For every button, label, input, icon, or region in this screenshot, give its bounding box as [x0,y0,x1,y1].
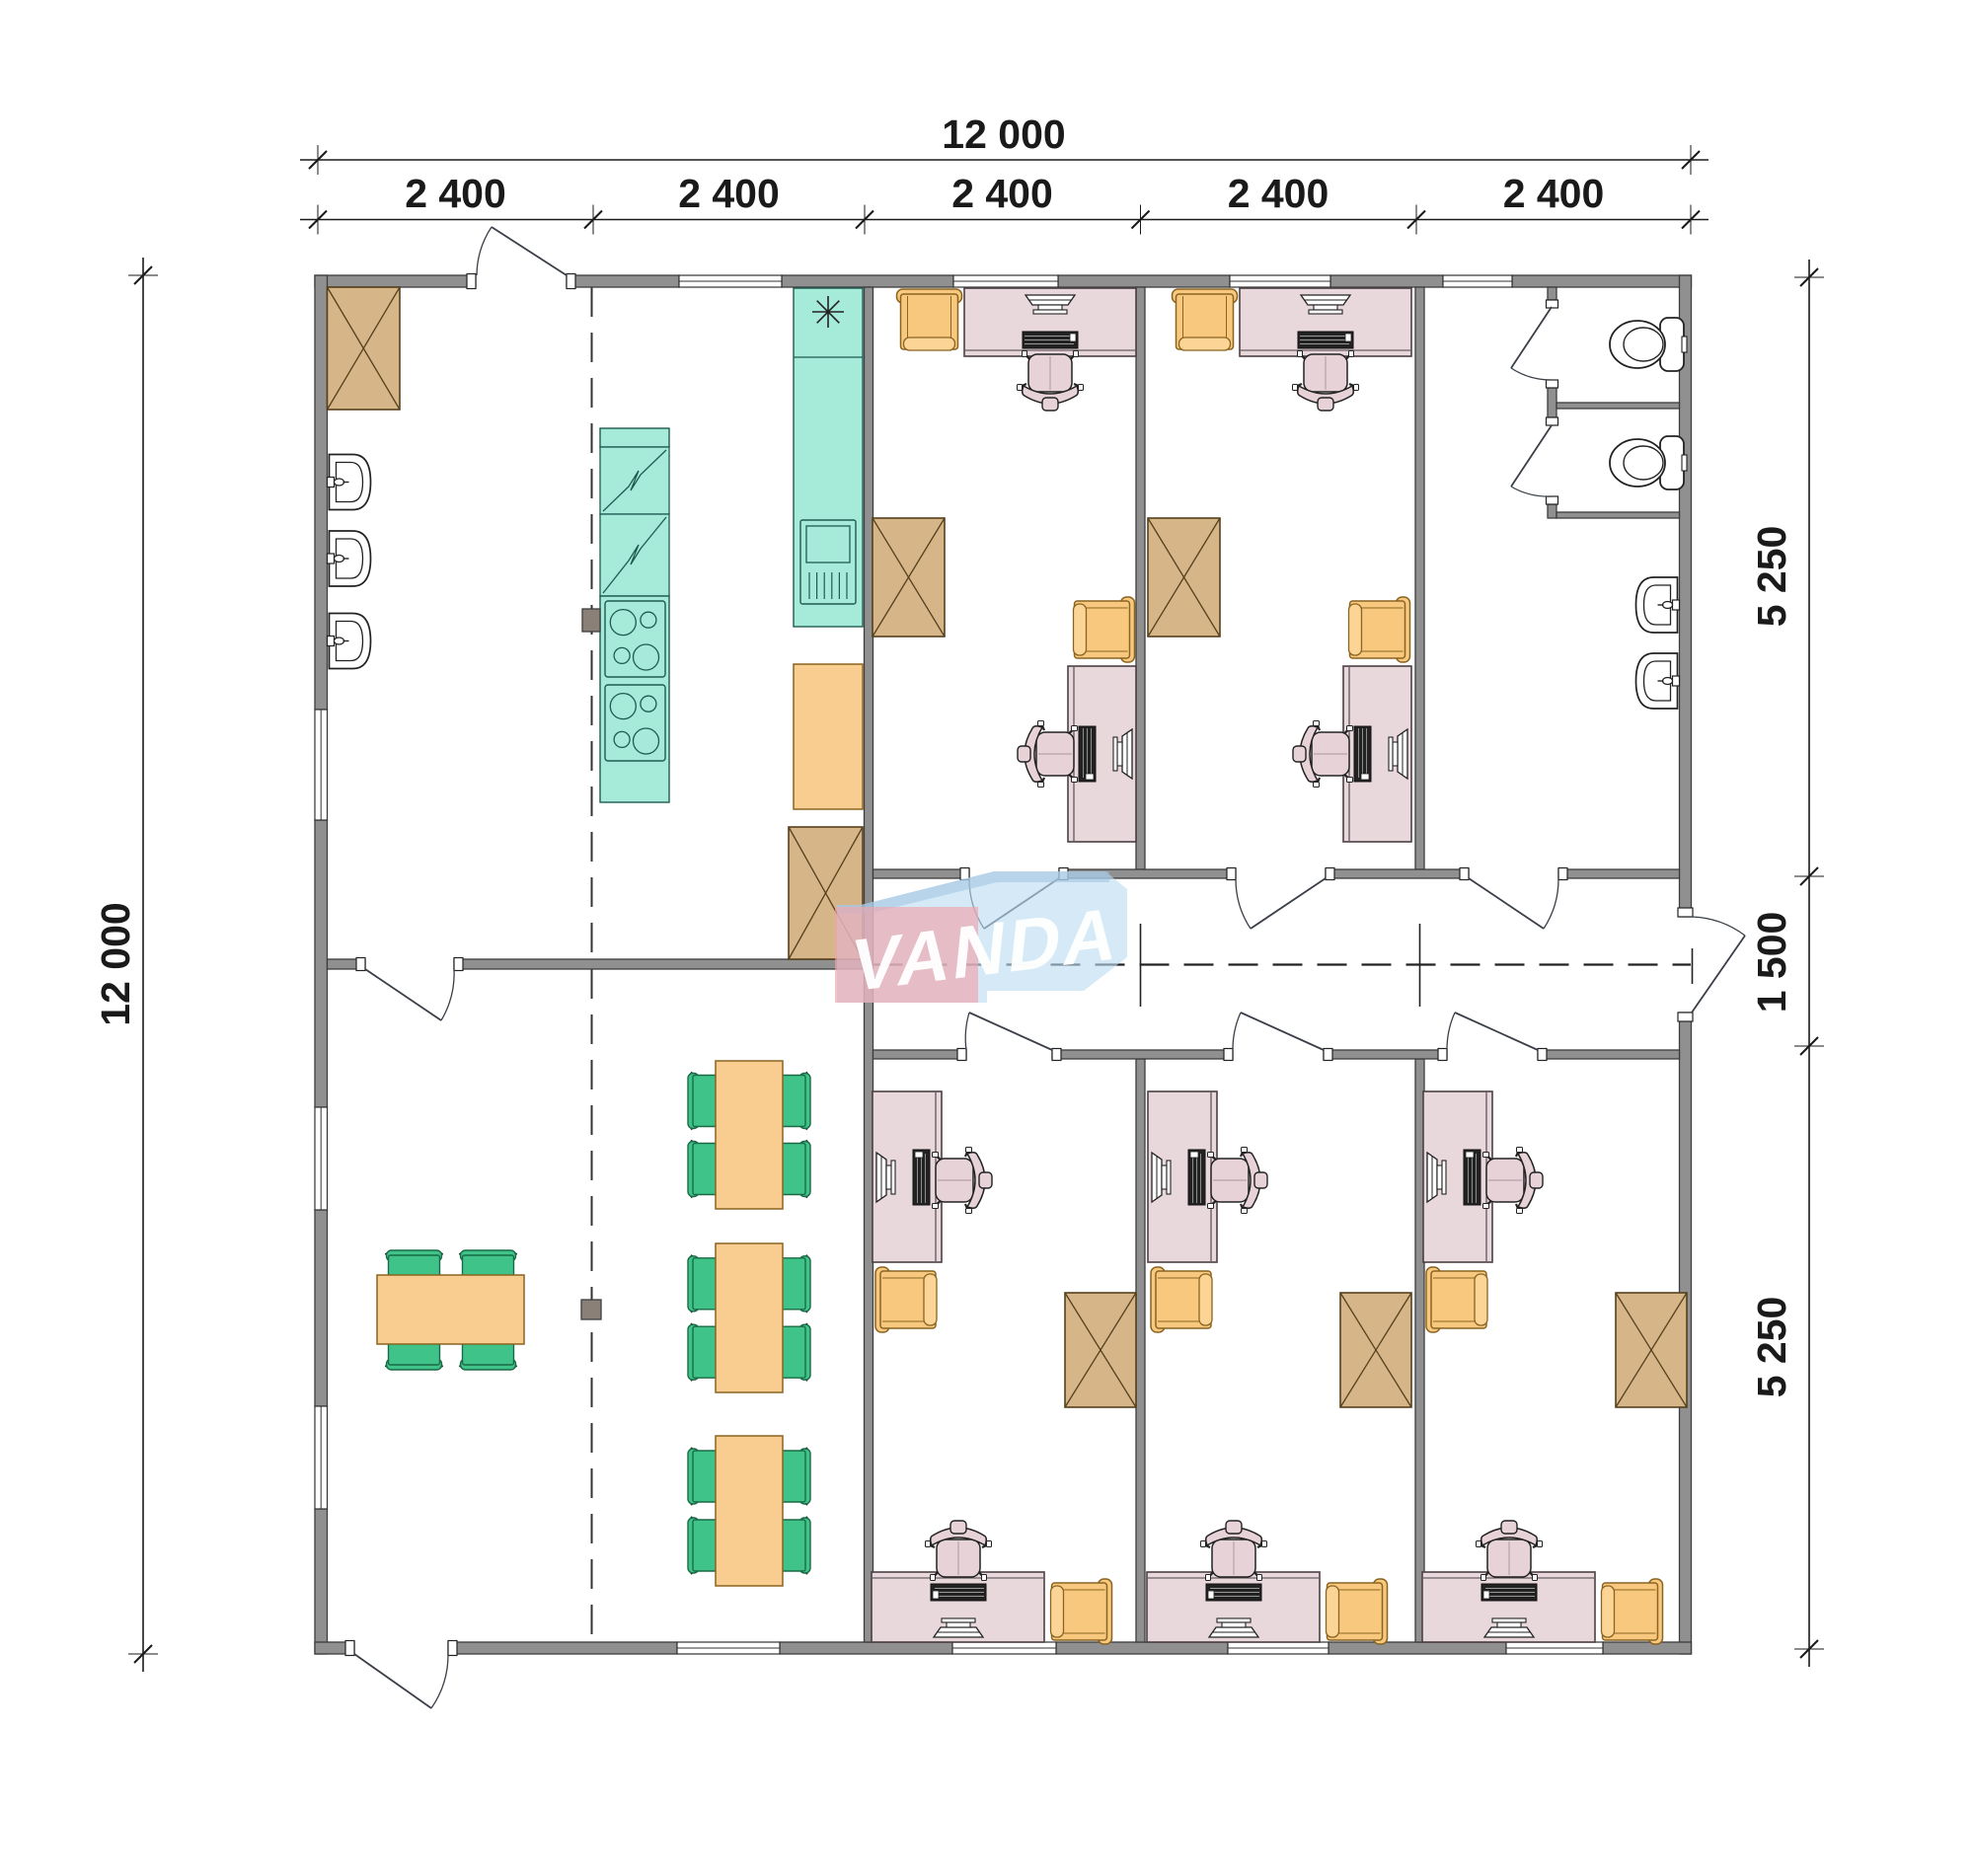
svg-text:12 000: 12 000 [942,112,1065,157]
svg-text:2 400: 2 400 [1503,171,1605,216]
svg-text:2 400: 2 400 [405,171,506,216]
svg-text:5 250: 5 250 [1749,1297,1794,1398]
svg-text:2 400: 2 400 [1228,171,1329,216]
svg-text:1 500: 1 500 [1749,912,1794,1013]
svg-text:2 400: 2 400 [951,171,1053,216]
svg-text:2 400: 2 400 [678,171,780,216]
svg-text:5 250: 5 250 [1749,526,1794,628]
svg-text:12 000: 12 000 [93,902,138,1025]
